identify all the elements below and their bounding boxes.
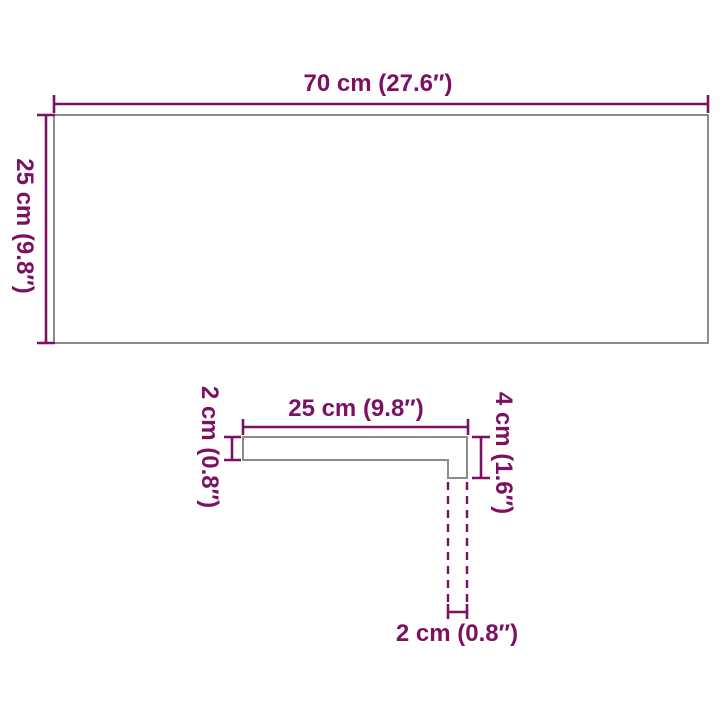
top-view-height-label: 25 cm (9.8″) xyxy=(11,158,38,294)
profile-depth-dimension-line xyxy=(448,604,467,619)
dimension-diagram: 70 cm (27.6″) 25 cm (9.8″) 25 cm (9.8″) … xyxy=(0,0,720,720)
dimension-diagram-svg: 70 cm (27.6″) 25 cm (9.8″) 25 cm (9.8″) … xyxy=(0,0,720,720)
profile-thickness-label: 2 cm (0.8″) xyxy=(196,386,223,508)
profile-height-dimension-line xyxy=(472,437,490,478)
top-view-width-dimension-line xyxy=(54,95,708,113)
profile-thickness-dimension-line xyxy=(224,437,241,460)
top-view-height-dimension-line xyxy=(37,115,55,343)
profile-height-label: 4 cm (1.6″) xyxy=(490,392,517,514)
top-view-outline xyxy=(54,115,708,343)
profile-depth-extension-lines xyxy=(448,482,467,604)
profile-depth-label: 2 cm (0.8″) xyxy=(396,620,518,647)
profile-outline xyxy=(243,437,467,478)
top-view-width-label: 70 cm (27.6″) xyxy=(304,70,453,97)
profile-width-label: 25 cm (9.8″) xyxy=(288,395,424,422)
